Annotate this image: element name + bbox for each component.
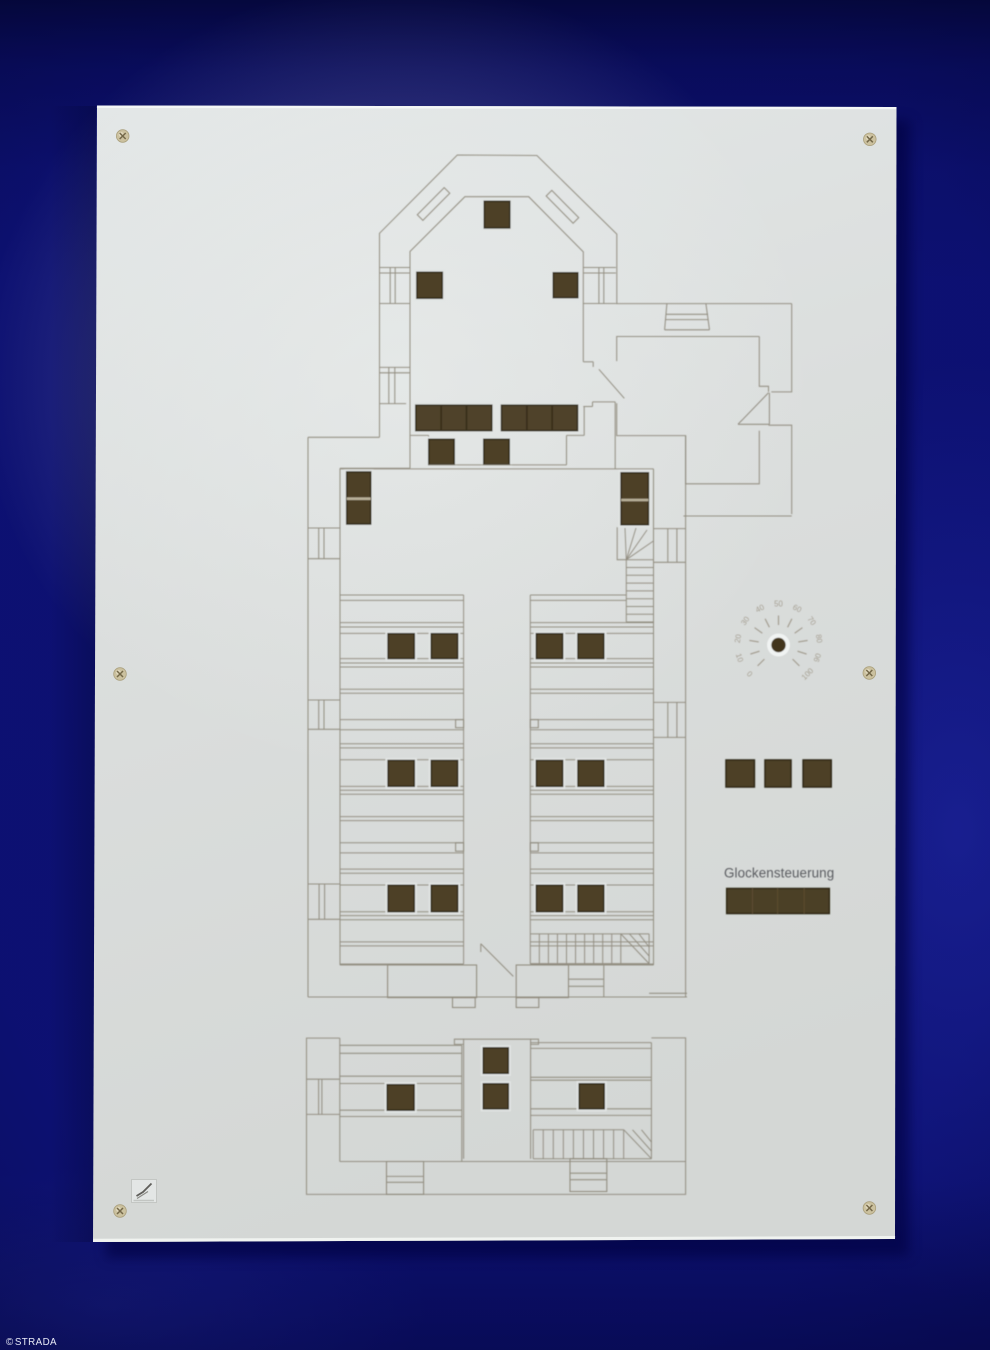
svg-text:© STRADA: © STRADA	[6, 1337, 57, 1348]
svg-text:50: 50	[774, 600, 783, 609]
svg-text:Glockensteuerung: Glockensteuerung	[724, 866, 834, 881]
